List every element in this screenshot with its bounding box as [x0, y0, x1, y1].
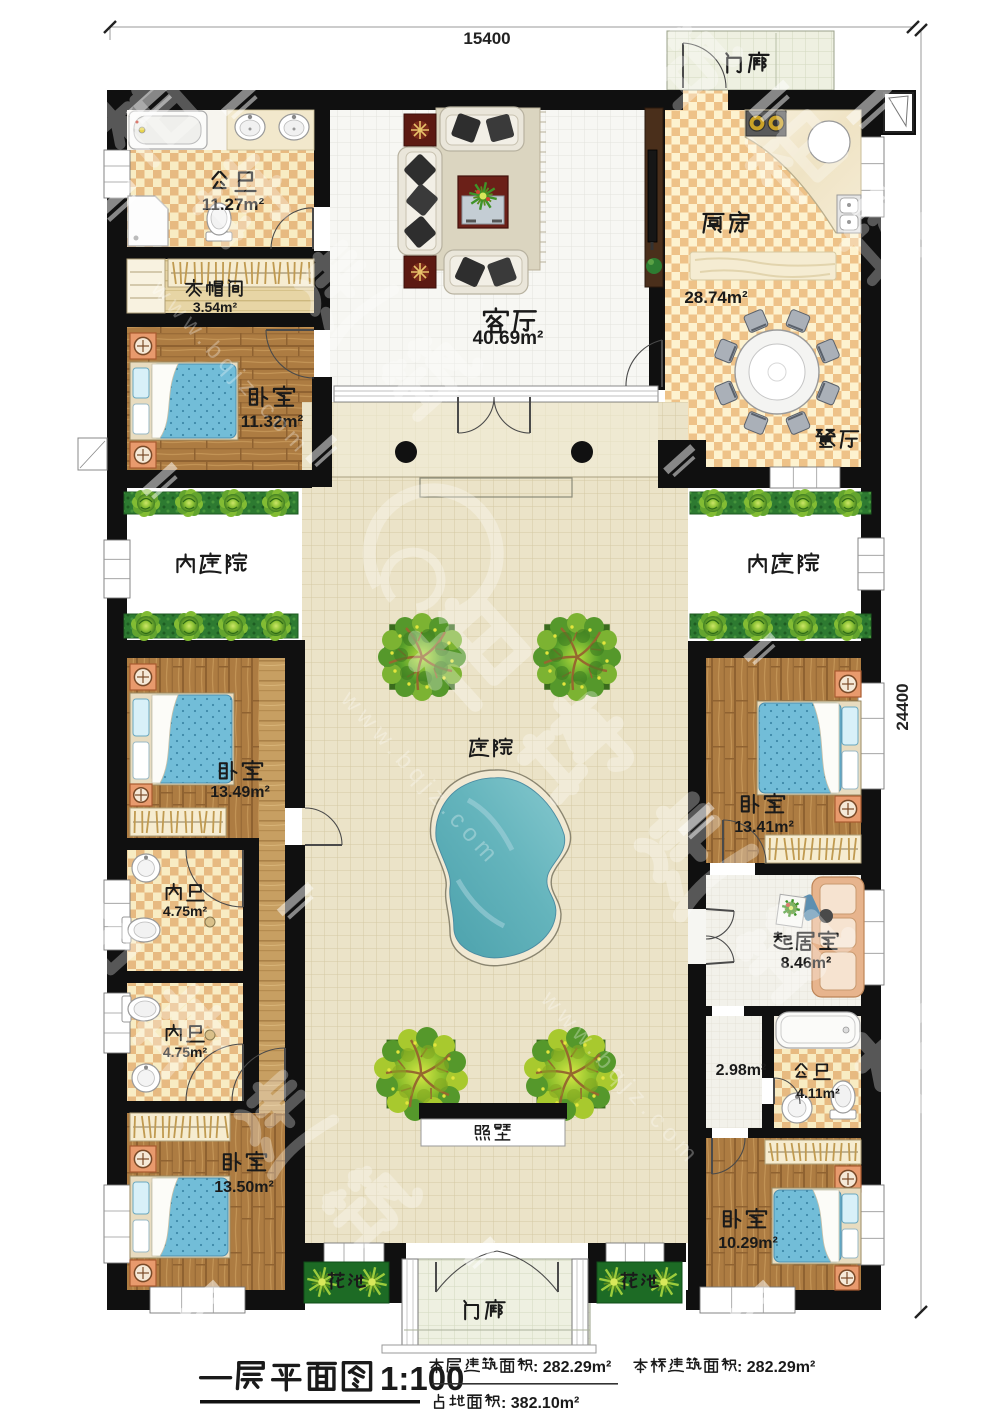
svg-text:: 382.10m²: : 382.10m²: [501, 1395, 579, 1412]
svg-text:10.29m²: 10.29m²: [718, 1235, 778, 1252]
svg-text:13.50m²: 13.50m²: [214, 1179, 274, 1196]
svg-text:13.49m²: 13.49m²: [210, 784, 270, 801]
svg-text:: 282.29m²: : 282.29m²: [533, 1359, 611, 1376]
svg-text:40.69m²: 40.69m²: [473, 328, 544, 349]
svg-text:4.11m²: 4.11m²: [796, 1085, 840, 1101]
svg-text:4.75m²: 4.75m²: [163, 903, 208, 919]
svg-text:24400: 24400: [893, 683, 912, 730]
svg-text:1:100: 1:100: [380, 1360, 464, 1397]
svg-text:28.74m²: 28.74m²: [684, 288, 748, 307]
svg-text:2.98m²: 2.98m²: [716, 1062, 767, 1079]
svg-text:13.41m²: 13.41m²: [734, 819, 794, 836]
svg-text:15400: 15400: [463, 29, 510, 48]
svg-text:: 282.29m²: : 282.29m²: [737, 1359, 815, 1376]
